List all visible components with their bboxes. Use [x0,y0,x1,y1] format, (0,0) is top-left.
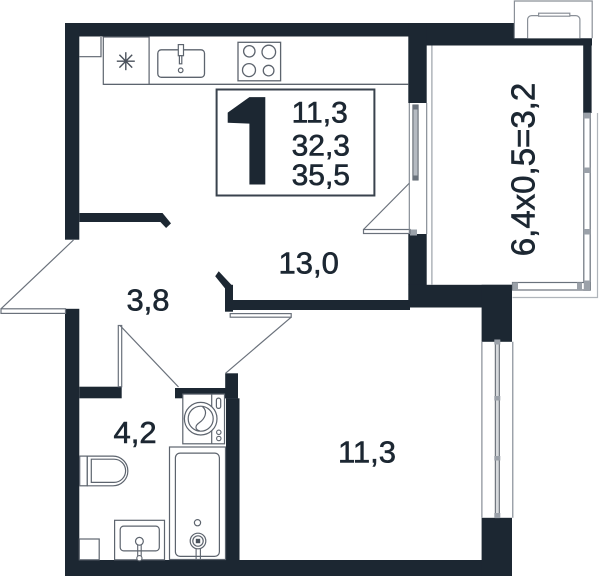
svg-text:13,0: 13,0 [279,245,339,280]
svg-text:11,3: 11,3 [292,97,348,130]
svg-text:35,5: 35,5 [292,159,350,192]
svg-text:11,3: 11,3 [338,435,396,470]
svg-text:32,3: 32,3 [292,130,350,163]
svg-text:3,8: 3,8 [126,282,169,317]
svg-text:4,2: 4,2 [114,415,157,450]
svg-text:6,4х0,5=3,2: 6,4х0,5=3,2 [505,83,542,256]
